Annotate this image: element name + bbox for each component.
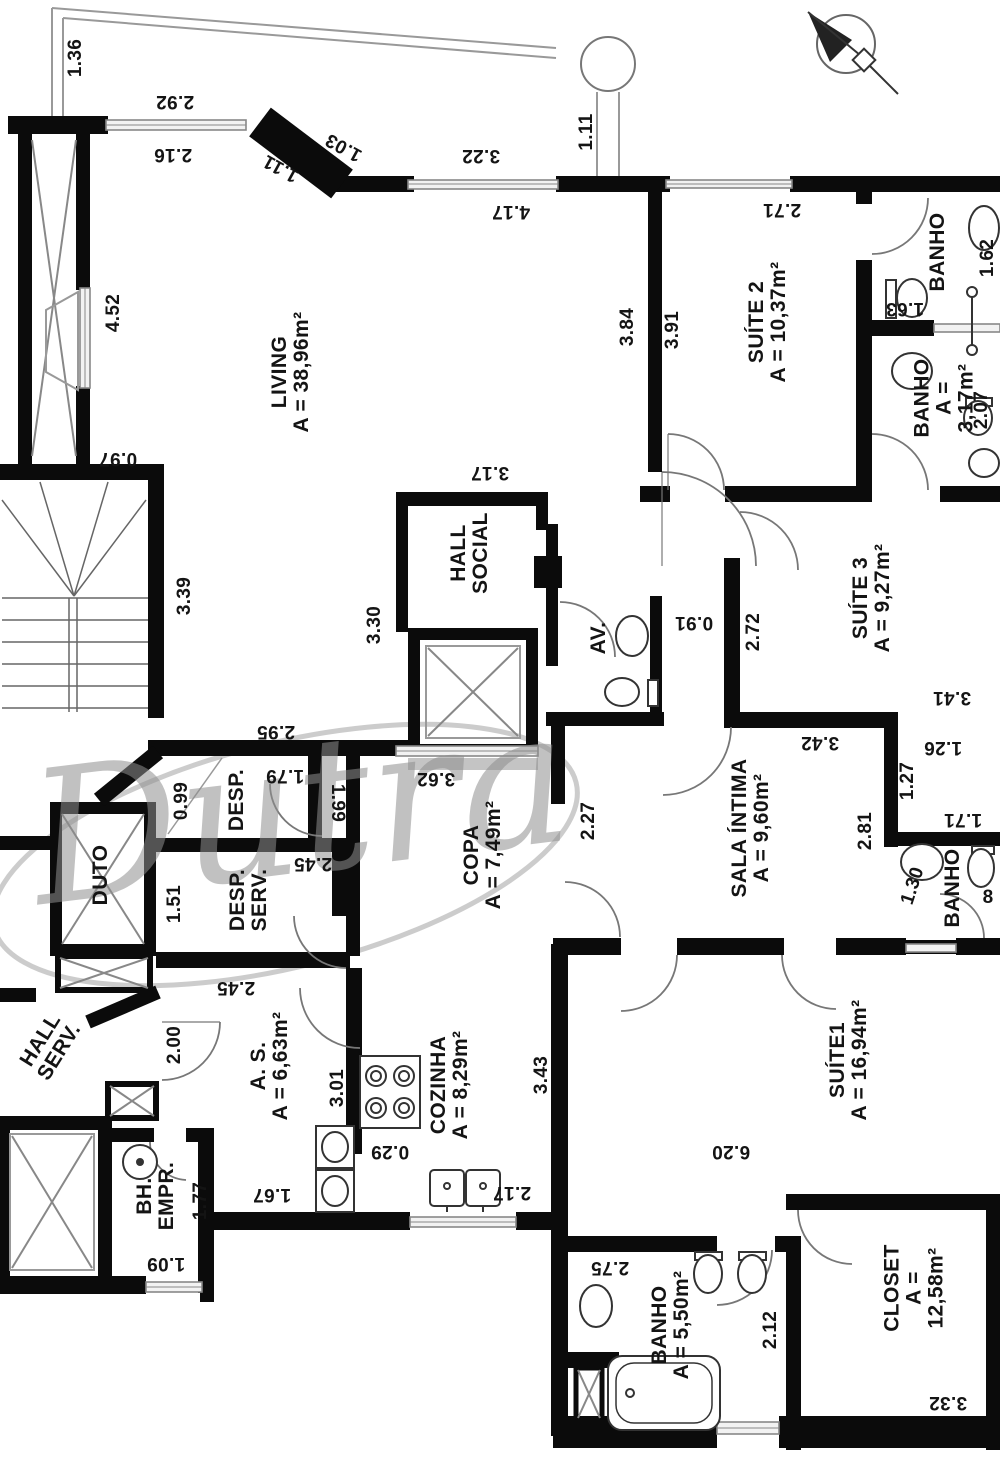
stove bbox=[360, 1056, 420, 1128]
bidet-banho-suite1 bbox=[738, 1255, 766, 1293]
plan-graphics bbox=[0, 0, 1000, 1460]
sink-banho2 bbox=[969, 206, 999, 250]
stairs bbox=[2, 482, 148, 712]
north-arrow-icon bbox=[808, 12, 898, 94]
column-circle bbox=[581, 37, 635, 91]
sink-banho317 bbox=[892, 353, 932, 389]
toilet-banho-sala bbox=[968, 849, 994, 887]
sink-banho-suite1 bbox=[580, 1285, 612, 1327]
sink-av bbox=[616, 616, 648, 656]
window-midlines bbox=[85, 125, 792, 1428]
balcony-outline bbox=[52, 8, 619, 178]
bidet-banho317 bbox=[969, 449, 999, 477]
sink-banho-sala bbox=[901, 844, 943, 880]
watermark-swoosh bbox=[0, 674, 603, 1036]
toilet-av bbox=[605, 678, 639, 706]
diagonal-walls bbox=[88, 122, 342, 1022]
toilet-banho317 bbox=[964, 401, 992, 435]
toilet-banho-suite1 bbox=[694, 1255, 722, 1293]
toilet-banho2 bbox=[897, 279, 927, 317]
floor-plan: Dutra LIVING A = 38,96m²SUÍTE 2 A = 10,3… bbox=[0, 0, 1000, 1460]
